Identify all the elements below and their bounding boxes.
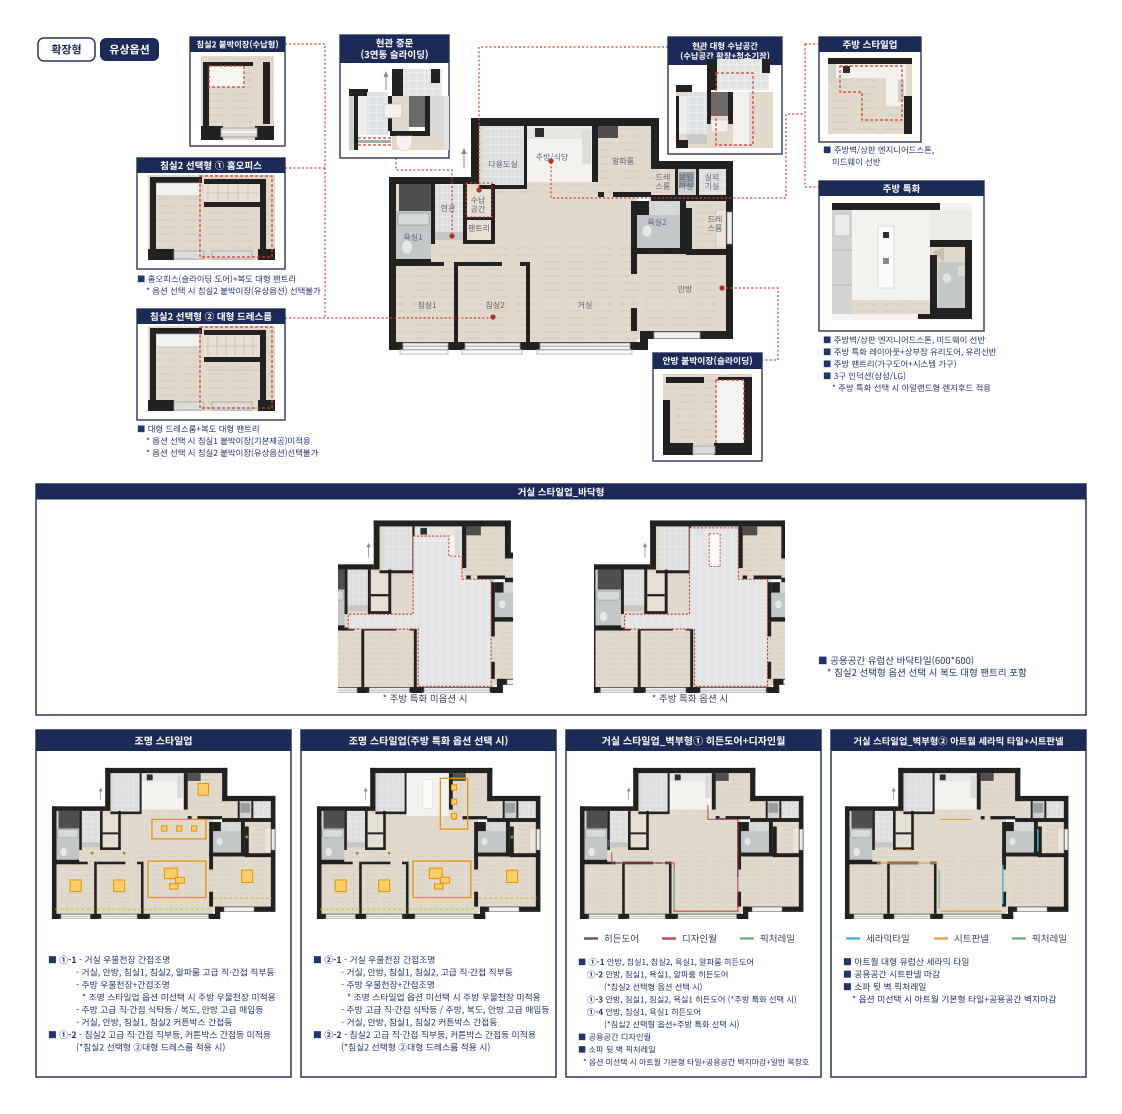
svg-text:침실2 선택형 ② 대형 드레스룸: 침실2 선택형 ② 대형 드레스룸 xyxy=(150,309,272,323)
svg-text:시트판넬: 시트판넬 xyxy=(954,931,989,945)
svg-text:- 주방 우물천장+간접조명: - 주방 우물천장+간접조명 xyxy=(76,978,170,991)
svg-text:* 주방 특화 미옵션 시: * 주방 특화 미옵션 시 xyxy=(383,691,468,705)
svg-text:■ ①-1 - 거실 우물천장 간접조명: ■ ①-1 - 거실 우물천장 간접조명 xyxy=(48,953,170,966)
svg-text:■ 소파 뒷 벽 픽처레일: ■ 소파 뒷 벽 픽처레일 xyxy=(843,980,926,993)
svg-text:거실 스타일업_벽부형② 아트월 세라믹 타일+시트판넬: 거실 스타일업_벽부형② 아트월 세라믹 타일+시트판넬 xyxy=(853,734,1064,748)
svg-text:(*침실2 선택형 옵션 선택 시): (*침실2 선택형 옵션 선택 시) xyxy=(604,981,703,993)
svg-text:■ 공용공간 시트판넬 마감: ■ 공용공간 시트판넬 마감 xyxy=(843,968,940,981)
svg-text:침실2 붙박이장(수납형): 침실2 붙박이장(수납형) xyxy=(196,39,278,51)
svg-text:주방 특화: 주방 특화 xyxy=(883,181,921,195)
svg-text:- 거실, 안방, 침실1, 침실2 커튼박스 간접등: - 거실, 안방, 침실1, 침실2 커튼박스 간접등 xyxy=(341,1016,497,1029)
svg-text:■ 아트월 대형 유럽산 세라믹 타일: ■ 아트월 대형 유럽산 세라믹 타일 xyxy=(843,955,969,968)
svg-text:세라믹타일: 세라믹타일 xyxy=(866,931,910,945)
svg-text:■ 대형 드레스룸+복도 대형 팬트리: ■ 대형 드레스룸+복도 대형 팬트리 xyxy=(137,423,260,435)
svg-text:픽처레일: 픽처레일 xyxy=(760,931,795,945)
svg-text:히든도어: 히든도어 xyxy=(604,931,639,945)
svg-text:* 옵션 미선택 시 아트월 기본형 타일+공용공간 벽지마: * 옵션 미선택 시 아트월 기본형 타일+공용공간 벽지마감 xyxy=(852,993,1056,1006)
svg-text:■ 주방 팬트리(가구도어+시스템 가구): ■ 주방 팬트리(가구도어+시스템 가구) xyxy=(823,358,957,370)
svg-text:디자인월: 디자인월 xyxy=(682,931,717,945)
svg-text:거실 스타일업_벽부형① 히든도어+디자인월: 거실 스타일업_벽부형① 히든도어+디자인월 xyxy=(602,733,786,748)
svg-text:- 주방 우물천장+간접조명: - 주방 우물천장+간접조명 xyxy=(341,978,435,991)
svg-text:■ 주방벽/상판 엔지니어드스톤, 미드웨이 선반: ■ 주방벽/상판 엔지니어드스톤, 미드웨이 선반 xyxy=(823,334,985,346)
svg-text:①-2 안방, 침실1, 욕실1, 알파룸 히든도어: ①-2 안방, 침실1, 욕실1, 알파룸 히든도어 xyxy=(587,969,728,981)
svg-text:픽처레일: 픽처레일 xyxy=(1032,931,1067,945)
svg-text:* 조명 스타일업 옵션 미선택 시 주방 우물천장 미적용: * 조명 스타일업 옵션 미선택 시 주방 우물천장 미적용 xyxy=(82,991,276,1004)
svg-text:■ 홈오피스(슬라이딩 도어)+복도 대형 팬트리: ■ 홈오피스(슬라이딩 도어)+복도 대형 팬트리 xyxy=(137,273,296,285)
svg-text:미드웨이 선반: 미드웨이 선반 xyxy=(832,156,881,168)
svg-text:안방 붙박이장(슬라이딩): 안방 붙박이장(슬라이딩) xyxy=(662,354,752,367)
svg-text:* 옵션 미선택 시 아트월 기본형 타일+공용공간 벽지마: * 옵션 미선택 시 아트월 기본형 타일+공용공간 벽지마감+일반 목창호 xyxy=(583,1057,809,1068)
svg-text:■ 3구 인덕션(삼성/LG): ■ 3구 인덕션(삼성/LG) xyxy=(823,370,906,382)
svg-text:- 주방 고급 직·간접 식탁등 / 복도, 안방 고급 매: - 주방 고급 직·간접 식탁등 / 복도, 안방 고급 매입등 xyxy=(76,1003,263,1016)
svg-text:■ ①-2 - 침실2 고급 직·간접 직부등, 커튼박스: ■ ①-2 - 침실2 고급 직·간접 직부등, 커튼박스 간접등 미적용 xyxy=(48,1028,271,1041)
svg-text:* 조명 스타일업 옵션 미선택 시 주방 우물천장 미적용: * 조명 스타일업 옵션 미선택 시 주방 우물천장 미적용 xyxy=(347,991,541,1004)
svg-text:- 주방 고급 직·간접 식탁등 / 주방, 복도, 안방: - 주방 고급 직·간접 식탁등 / 주방, 복도, 안방 고급 매입등 xyxy=(341,1003,549,1016)
svg-text:- 거실, 안방, 침실1, 침실2, 고급 직·간접 직부: - 거실, 안방, 침실1, 침실2, 고급 직·간접 직부등 xyxy=(341,966,513,979)
svg-text:침실2 선택형 ① 홈오피스: 침실2 선택형 ① 홈오피스 xyxy=(160,158,262,172)
svg-text:주방 스타일업: 주방 스타일업 xyxy=(842,37,897,51)
svg-text:■ ②-2 - 침실2 고급 직·간접 직부등, 커튼박스: ■ ②-2 - 침실2 고급 직·간접 직부등, 커튼박스 간접등 미적용 xyxy=(313,1028,536,1041)
svg-text:* 옵션 선택 시 침실2 붙박이장(유상옵션) 선택불가: * 옵션 선택 시 침실2 붙박이장(유상옵션) 선택불가 xyxy=(146,285,321,297)
svg-text:* 주방 특화 선택 시 아일랜드형 렌지후드 적용: * 주방 특화 선택 시 아일랜드형 렌지후드 적용 xyxy=(832,382,991,394)
svg-text:①-4 안방, 침실1, 욕실1 히든도어: ①-4 안방, 침실1, 욕실1 히든도어 xyxy=(587,1006,701,1018)
svg-text:■ 주방 특화 레이아웃+상부장 유리도어, 유리선반: ■ 주방 특화 레이아웃+상부장 유리도어, 유리선반 xyxy=(823,346,997,358)
svg-text:조명 스타일업: 조명 스타일업 xyxy=(135,733,193,748)
svg-text:(*침실2 선택형 옵션+주방 특화 선택 시): (*침실2 선택형 옵션+주방 특화 선택 시) xyxy=(604,1019,740,1031)
svg-text:유상옵션: 유상옵션 xyxy=(109,42,149,58)
svg-text:- 거실, 안방, 침실1, 침실2 커튼박스 간접등: - 거실, 안방, 침실1, 침실2 커튼박스 간접등 xyxy=(76,1016,232,1029)
svg-text:* 침실2 선택형 옵션 선택 시 복도 대형 팬트리 포함: * 침실2 선택형 옵션 선택 시 복도 대형 팬트리 포함 xyxy=(827,665,1027,679)
svg-text:- 거실, 안방, 침실1, 침실2, 알파룸 고급 직·간: - 거실, 안방, 침실1, 침실2, 알파룸 고급 직·간접 직부등 xyxy=(76,966,275,979)
svg-text:■ 공용공간 디자인월: ■ 공용공간 디자인월 xyxy=(578,1031,651,1043)
svg-text:■ 소파 뒷 벽 픽처레일: ■ 소파 뒷 벽 픽처레일 xyxy=(578,1044,656,1056)
svg-text:거실 스타일업_바닥형: 거실 스타일업_바닥형 xyxy=(518,485,605,499)
svg-text:* 옵션 선택 시 침실1 붙박이장(기본제공)미적용: * 옵션 선택 시 침실1 붙박이장(기본제공)미적용 xyxy=(146,435,311,447)
svg-text:■ 주방벽/상판 엔지니어드스톤,: ■ 주방벽/상판 엔지니어드스톤, xyxy=(823,144,934,156)
svg-text:(3연동 슬라이딩): (3연동 슬라이딩) xyxy=(361,47,429,61)
svg-text:확장형: 확장형 xyxy=(51,42,81,58)
svg-text:(*침실2 선택형 ②대형 드레스룸 적용 시): (*침실2 선택형 ②대형 드레스룸 적용 시) xyxy=(341,1041,490,1054)
svg-text:■ ②-1 - 거실 우물천장 간접조명: ■ ②-1 - 거실 우물천장 간접조명 xyxy=(313,953,435,966)
svg-text:①-3 안방, 침실1, 침실2, 욕실1 히든도어 (*주: ①-3 안방, 침실1, 침실2, 욕실1 히든도어 (*주방 특화 선택 시) xyxy=(587,994,797,1006)
svg-text:(*침실2 선택형 ②대형 드레스룸 적용 시): (*침실2 선택형 ②대형 드레스룸 적용 시) xyxy=(76,1041,225,1054)
svg-text:* 주방 특화 옵션 시: * 주방 특화 옵션 시 xyxy=(652,691,728,705)
svg-text:* 옵션 선택 시 침실2 붙박이장(유상옵션)선택불가: * 옵션 선택 시 침실2 붙박이장(유상옵션)선택불가 xyxy=(146,447,319,459)
svg-text:■ ①-1 안방, 침실1, 침실2, 욕실1, 알파룸 히: ■ ①-1 안방, 침실1, 침실2, 욕실1, 알파룸 히든도어 xyxy=(578,956,754,968)
svg-text:조명 스타일업(주방 특화 옵션 선택 시): 조명 스타일업(주방 특화 옵션 선택 시) xyxy=(349,733,509,748)
